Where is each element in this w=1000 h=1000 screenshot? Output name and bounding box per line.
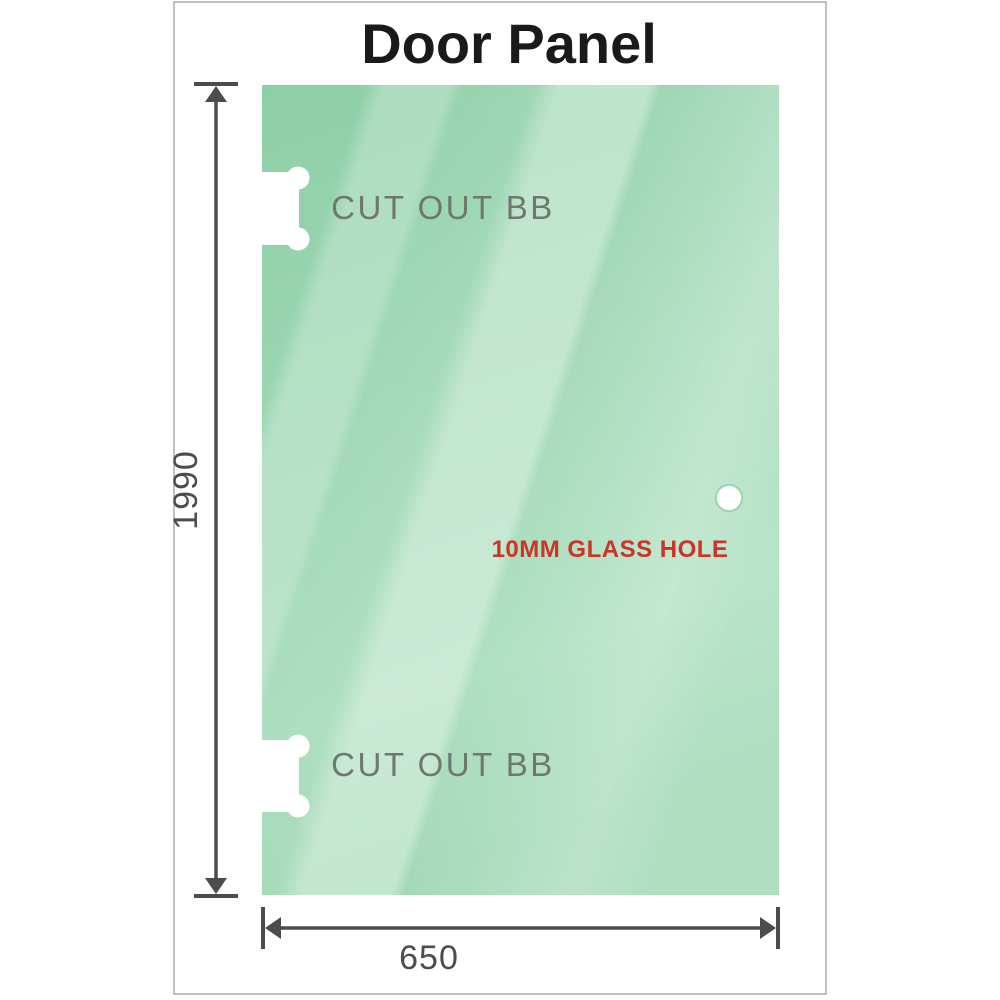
width-dimension-right-tick bbox=[776, 907, 780, 949]
door-panel-diagram: Door Panel CUT OUT BB CUT OUT BB 10MM GL… bbox=[0, 0, 1000, 1000]
cutout-bottom-lower-lobe bbox=[287, 795, 310, 818]
glass-hole bbox=[716, 485, 742, 511]
height-dimension-label: 1990 bbox=[167, 450, 205, 530]
cutout-bottom-upper-lobe bbox=[287, 735, 310, 758]
height-dimension-bottom-tick bbox=[194, 894, 238, 898]
height-dimension-top-tick bbox=[194, 82, 238, 86]
cutout-top-lower-lobe bbox=[287, 228, 310, 251]
cutout-top-label: CUT OUT BB bbox=[331, 189, 555, 226]
glass-hole-label: 10MM GLASS HOLE bbox=[492, 536, 729, 563]
cutout-bottom-label: CUT OUT BB bbox=[331, 746, 555, 783]
width-dimension-left-tick bbox=[261, 907, 265, 949]
cutout-top-upper-lobe bbox=[287, 167, 310, 190]
diagram-canvas: Door Panel CUT OUT BB CUT OUT BB 10MM GL… bbox=[0, 0, 1000, 1000]
width-dimension-label: 650 bbox=[399, 939, 459, 977]
page-title: Door Panel bbox=[361, 12, 657, 75]
